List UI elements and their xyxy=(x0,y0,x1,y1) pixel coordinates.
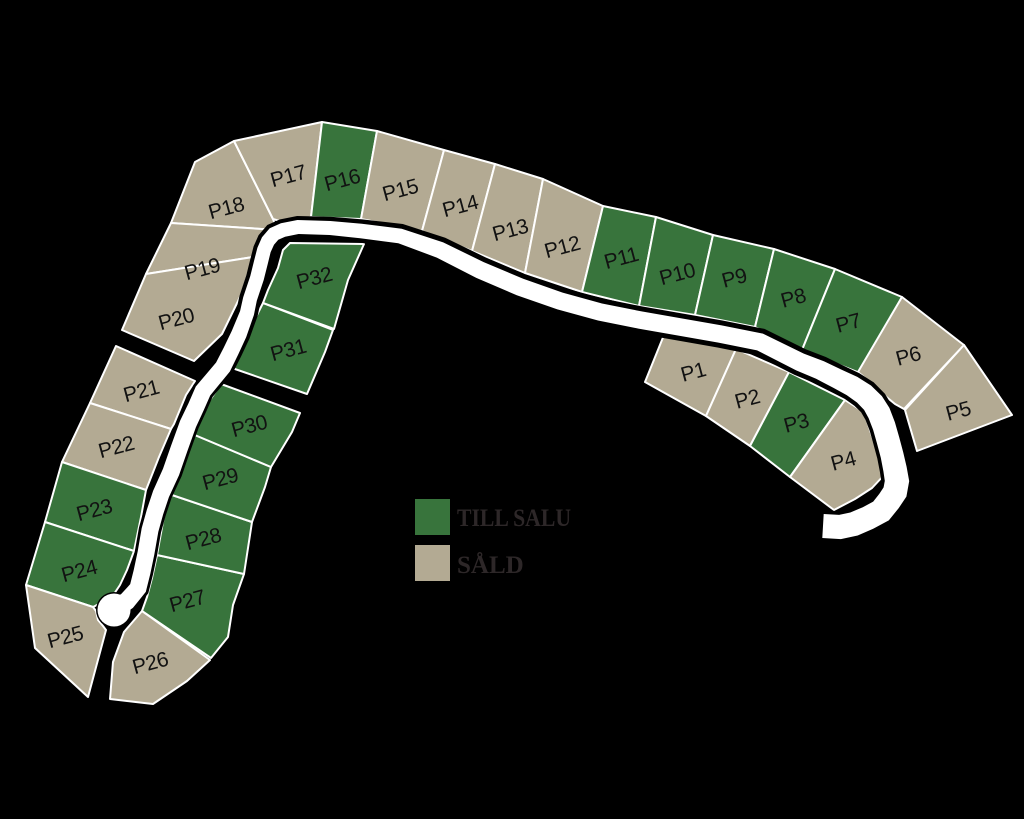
svg-text:SÅLD: SÅLD xyxy=(457,551,524,579)
svg-text:TILL SALU: TILL SALU xyxy=(457,505,571,532)
